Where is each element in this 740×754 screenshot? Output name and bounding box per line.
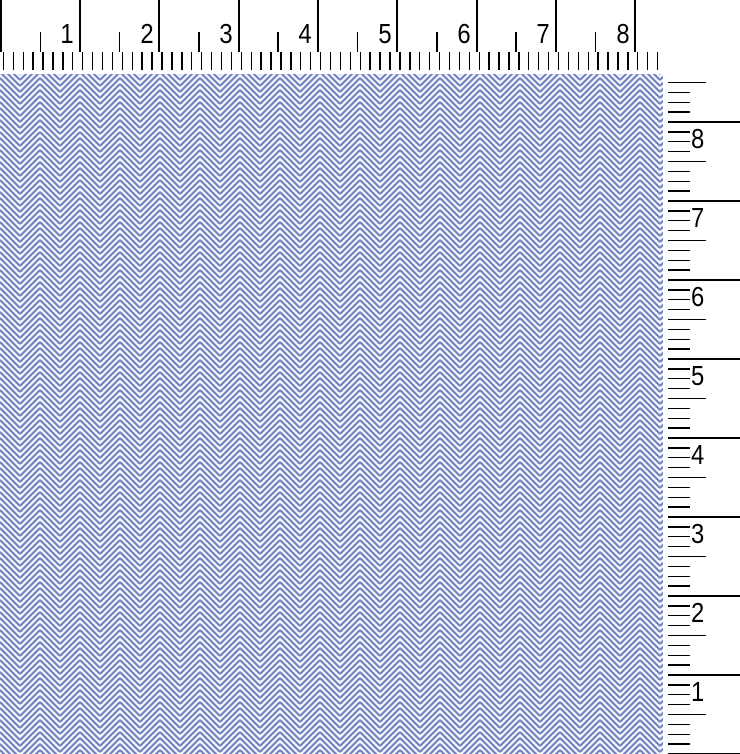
inch-label: 2 [691,599,704,627]
eighth-inch-tick [369,52,370,70]
eighth-inch-tick [668,181,690,182]
eighth-inch-tick [449,52,450,70]
half-inch-tick [668,714,706,716]
eighth-inch-tick [668,497,690,498]
half-inch-tick [198,32,200,52]
eighth-inch-tick [151,52,152,70]
half-inch-tick [668,635,706,637]
eighth-inch-tick [668,339,690,340]
eighth-inch-tick [588,52,589,70]
eighth-inch-tick [290,52,291,70]
eighth-inch-tick [668,576,690,577]
eighth-inch-tick [668,368,690,369]
eighth-inch-tick [23,52,24,70]
inch-label: 1 [61,20,74,48]
eighth-inch-tick [469,52,470,70]
half-inch-tick [595,32,597,52]
eighth-inch-tick [668,566,690,567]
eighth-inch-tick [668,260,690,261]
inch-label: 4 [299,20,312,48]
eighth-inch-tick [13,52,14,70]
eighth-inch-tick [668,487,690,488]
inch-label: 7 [537,20,550,48]
half-inch-tick [515,32,517,52]
eighth-inch-tick [52,52,53,70]
eighth-inch-tick [668,625,690,626]
eighth-inch-tick [668,526,690,527]
eighth-inch-tick [668,329,690,330]
eighth-inch-tick [668,111,690,112]
herringbone-pattern [0,74,663,754]
inch-label: 1 [691,678,704,706]
eighth-inch-tick [122,52,123,70]
eighth-inch-tick [668,506,690,507]
inch-label: 5 [378,20,391,48]
eighth-inch-tick [668,388,690,389]
eighth-inch-tick [459,52,460,70]
eighth-inch-tick [668,427,690,428]
eighth-inch-tick [597,52,598,70]
inch-label: 7 [691,204,704,232]
inch-label: 2 [140,20,153,48]
eighth-inch-tick [429,52,430,70]
eighth-inch-tick [558,52,559,70]
eighth-inch-tick [389,52,390,70]
half-inch-tick [668,240,706,242]
eighth-inch-tick [280,52,281,70]
half-inch-tick [668,556,706,558]
eighth-inch-tick [668,250,690,251]
eighth-inch-tick [668,131,690,132]
eighth-inch-tick [668,734,690,735]
eighth-inch-tick [668,141,690,142]
eighth-inch-tick [668,467,690,468]
half-inch-tick [668,319,706,321]
half-inch-tick [40,32,42,52]
eighth-inch-tick [419,52,420,70]
eighth-inch-tick [668,309,690,310]
eighth-inch-tick [668,585,690,586]
eighth-inch-tick [32,52,33,70]
eighth-inch-tick [538,52,539,70]
eighth-inch-tick [241,52,242,70]
eighth-inch-tick [62,52,63,70]
inch-label: 8 [691,125,704,153]
half-inch-tick [668,477,706,479]
eighth-inch-tick [668,655,690,656]
eighth-inch-tick [668,418,690,419]
eighth-inch-tick [310,52,311,70]
eighth-inch-tick [379,52,380,70]
eighth-inch-tick [668,92,690,93]
eighth-inch-tick [498,52,499,70]
eighth-inch-tick [607,52,608,70]
eighth-inch-tick [300,52,301,70]
eighth-inch-tick [350,52,351,70]
eighth-inch-tick [3,52,4,70]
eighth-inch-tick [657,52,658,70]
fabric-measurement-view: 12345678 87654321 [0,0,740,754]
eighth-inch-tick [668,743,690,744]
half-inch-tick [436,32,438,52]
eighth-inch-tick [171,52,172,70]
eighth-inch-tick [340,52,341,70]
eighth-inch-tick [578,52,579,70]
eighth-inch-tick [627,52,628,70]
eighth-inch-tick [488,52,489,70]
eighth-inch-tick [191,52,192,70]
eighth-inch-tick [668,289,690,290]
eighth-inch-tick [637,52,638,70]
eighth-inch-tick [439,52,440,70]
eighth-inch-tick [668,378,690,379]
eighth-inch-tick [668,408,690,409]
eighth-inch-tick [548,52,549,70]
eighth-inch-tick [668,457,690,458]
horizontal-ruler: 12345678 [0,0,740,73]
inch-tick [79,0,81,52]
eighth-inch-tick [181,52,182,70]
eighth-inch-tick [668,348,690,349]
eighth-inch-tick [260,52,261,70]
eighth-inch-tick [668,536,690,537]
inch-tick [317,0,319,52]
eighth-inch-tick [668,171,690,172]
inch-tick [396,0,398,52]
eighth-inch-tick [668,605,690,606]
eighth-inch-tick [668,664,690,665]
inch-label: 6 [691,283,704,311]
inch-tick [555,0,557,52]
fabric-swatch [0,74,663,754]
eighth-inch-tick [617,52,618,70]
eighth-inch-tick [668,704,690,705]
eighth-inch-tick [92,52,93,70]
eighth-inch-tick [161,52,162,70]
eighth-inch-tick [72,52,73,70]
eighth-inch-tick [668,546,690,547]
inch-tick [476,0,478,52]
eighth-inch-tick [201,52,202,70]
eighth-inch-tick [251,52,252,70]
half-inch-tick [277,32,279,52]
half-inch-tick [668,398,706,400]
eighth-inch-tick [668,447,690,448]
inch-tick [634,0,636,52]
eighth-inch-tick [668,694,690,695]
eighth-inch-tick [211,52,212,70]
eighth-inch-tick [668,230,690,231]
eighth-inch-tick [399,52,400,70]
eighth-inch-tick [102,52,103,70]
eighth-inch-tick [141,52,142,70]
eighth-inch-tick [82,52,83,70]
inch-tick [238,0,240,52]
eighth-inch-tick [668,210,690,211]
eighth-inch-tick [668,102,690,103]
eighth-inch-tick [132,52,133,70]
eighth-inch-tick [231,52,232,70]
eighth-inch-tick [668,269,690,270]
eighth-inch-tick [668,299,690,300]
inch-label: 8 [616,20,629,48]
eighth-inch-tick [668,615,690,616]
inch-label: 5 [691,362,704,390]
inch-tick [158,0,160,52]
inch-label: 3 [691,520,704,548]
inch-tick [0,0,2,52]
eighth-inch-tick [528,52,529,70]
eighth-inch-tick [360,52,361,70]
eighth-inch-tick [320,52,321,70]
inch-label: 4 [691,441,704,469]
eighth-inch-tick [668,190,690,191]
inch-label: 6 [457,20,470,48]
half-inch-tick [357,32,359,52]
eighth-inch-tick [270,52,271,70]
half-inch-tick [668,161,706,163]
eighth-inch-tick [409,52,410,70]
fabric-weave-area [0,74,663,754]
eighth-inch-tick [508,52,509,70]
half-inch-tick [119,32,121,52]
eighth-inch-tick [668,645,690,646]
eighth-inch-tick [668,151,690,152]
inch-label: 3 [219,20,232,48]
eighth-inch-tick [668,724,690,725]
eighth-inch-tick [568,52,569,70]
eighth-inch-tick [221,52,222,70]
eighth-inch-tick [518,52,519,70]
eighth-inch-tick [42,52,43,70]
eighth-inch-tick [330,52,331,70]
eighth-inch-tick [668,684,690,685]
half-inch-tick [668,82,706,84]
eighth-inch-tick [479,52,480,70]
eighth-inch-tick [668,220,690,221]
eighth-inch-tick [112,52,113,70]
eighth-inch-tick [647,52,648,70]
vertical-ruler: 87654321 [664,73,740,754]
